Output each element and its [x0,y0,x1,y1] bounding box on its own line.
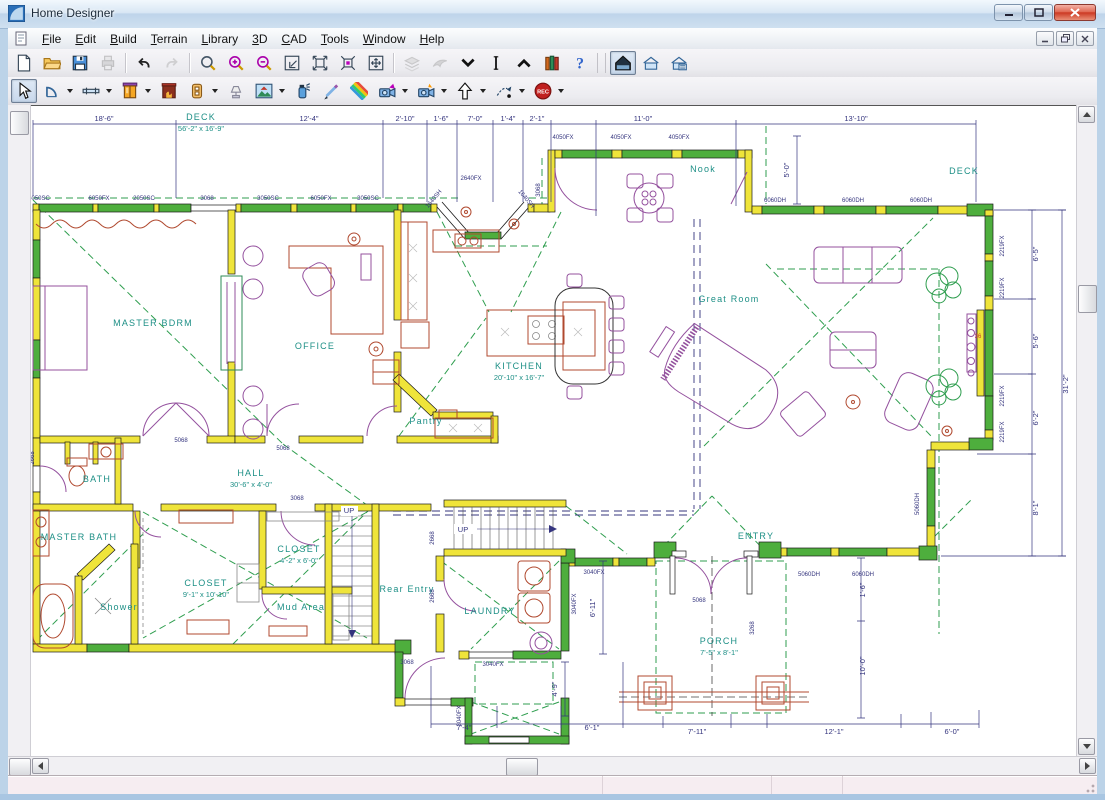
window-code-label: 2219FX [1000,277,1006,298]
help-icon [571,54,589,72]
dimension-label: 31'-2" [1061,374,1070,393]
floor-plan[interactable]: DECK56'-2" x 16'-9"NookDECKGreat RoomMAS… [31,106,1077,756]
window-code-label: 2219FX [1000,421,1006,442]
dimension-label: 7'-11" [688,727,707,736]
redo-icon [163,54,181,72]
layers-icon [403,54,421,72]
window-code-label: 2219FX [1000,385,1006,406]
scroll-left-button[interactable] [32,758,49,774]
room-label: BATH [83,474,111,484]
horizontal-scrollbar[interactable] [8,756,1097,776]
mdi-restore-button[interactable] [1056,31,1074,46]
tool-expand-region[interactable] [335,51,361,75]
scroll-down-button[interactable] [1078,738,1095,755]
dimension-label: UP [344,506,354,515]
menu-edit[interactable]: Edit [68,30,103,48]
tool-window-tool[interactable] [78,79,104,103]
cabinet-icon [121,82,139,100]
right-arrow-icon [1085,762,1090,770]
undo-icon [135,54,153,72]
menu-3d[interactable]: 3D [245,30,274,48]
dimension-label: 6'-1" [585,723,600,732]
camera-flash-icon [417,82,435,100]
walkthrough-icon [495,82,513,100]
window-code-label: 5068 [692,598,706,604]
room-label: Pantry [409,416,442,426]
room-label: MASTER BATH [41,532,118,542]
window-code-label: 36 [975,334,982,340]
maximize-button[interactable] [1024,4,1053,21]
menu-build[interactable]: Build [103,30,144,48]
left-scrollbar-thumb[interactable] [10,111,29,135]
room-label: Mud Area [277,602,325,612]
window-code-label: 3068 [200,196,214,202]
left-arrow-icon [38,762,43,770]
window-code-label: 3040FX [583,570,604,576]
menu-tools[interactable]: Tools [314,30,356,48]
tool-camera[interactable] [374,79,400,103]
room-size-label: 9'-1" x 10'-10" [183,590,229,599]
status-section [772,776,843,795]
window-code-label: 3068 [290,496,304,502]
tool-print [95,51,121,75]
window-code-label: 2668 [430,531,436,545]
tool-zoom-in[interactable] [223,51,249,75]
tool-fill-window[interactable] [279,51,305,75]
dimension-label: 7'-0" [468,114,483,123]
expand-region-icon [339,54,357,72]
exterior-walls [33,150,993,744]
menu-bar: FileEditBuildTerrainLibrary3DCADToolsWin… [8,28,1097,50]
resize-grip[interactable] [1083,781,1095,793]
room-size-label: 4'-2" x 6'-0" [280,556,318,565]
house-plan-icon [642,54,660,72]
dimension-label: 6'-5" [1031,246,1040,261]
zoom-out-icon [255,54,273,72]
menu-help[interactable]: Help [413,30,452,48]
window-code-label: 3068 [536,183,542,197]
window-bottom-border [0,794,1105,800]
expand-all-icon [311,54,329,72]
north-arrow-icon [456,82,474,100]
room-label: DECK [949,166,979,176]
outlet-icon [188,82,206,100]
spray-icon [294,82,312,100]
new-file-icon [15,54,33,72]
dropdown-arrow-icon[interactable] [519,89,525,93]
dropdown-arrow-icon[interactable] [67,89,73,93]
tool-undo[interactable] [131,51,157,75]
tool-walkthrough[interactable] [491,79,517,103]
status-bar [8,775,1097,795]
menu-window[interactable]: Window [356,30,413,48]
tool-fireplace[interactable] [156,79,182,103]
house-detail-icon [670,54,688,72]
tool-open-folder[interactable] [39,51,65,75]
stairs [332,506,557,638]
tool-feather [427,51,453,75]
status-section [8,776,603,795]
print-icon [99,54,117,72]
tool-expand-all[interactable] [307,51,333,75]
zoom-icon [199,54,217,72]
dimension-label: 13'-10" [844,114,868,123]
window-code-label: 6060DH [842,198,864,204]
app-logo-icon [8,5,25,22]
minimize-icon [1004,8,1014,17]
window-code-label: 2668 [31,451,36,465]
room-size-label: 7'-5" x 8'-1" [700,648,738,657]
status-section [603,776,772,795]
tool-door-arch[interactable] [39,79,65,103]
scroll-right-button[interactable] [1079,758,1096,774]
tool-materials[interactable] [346,79,372,103]
light-fixture-icon [227,82,245,100]
tool-outlet[interactable] [184,79,210,103]
room-label: ENTRY [738,531,774,541]
maximize-icon [1034,8,1044,17]
up-arrow-icon [1083,112,1091,117]
left-scrollbar[interactable] [8,105,31,756]
arrow-up-icon [515,54,533,72]
window-code-label: 6060DH [910,198,932,204]
vertical-scrollbar-thumb[interactable] [1078,285,1097,313]
tool-zoom[interactable] [195,51,221,75]
tool-camera-flash[interactable] [413,79,439,103]
tool-image-tool[interactable] [251,79,277,103]
mdi-controls [1036,31,1094,46]
menu-file[interactable]: File [35,30,68,48]
room-label: HALL [237,468,264,478]
pencil-icon [322,82,340,100]
materials-icon [350,82,368,100]
dropdown-arrow-icon[interactable] [145,89,151,93]
tool-spray[interactable] [290,79,316,103]
tool-arrow-down[interactable] [455,51,481,75]
dimension-label: 6'-2" [1031,410,1040,425]
camera-icon [378,82,396,100]
toolbar-grip [597,53,606,73]
window-code-label: 2219FX [1000,235,1006,256]
room-label: Great Room [698,294,759,304]
mdi-close-button[interactable] [1076,31,1094,46]
dropdown-arrow-icon[interactable] [441,89,447,93]
room-label: LAUNDRY [464,606,515,616]
window-code-label: 1640SH [516,189,535,209]
window-code-label: 4050FX [668,135,689,141]
minimize-button[interactable] [994,4,1023,21]
feather-icon [431,54,449,72]
fireplace-icon [160,82,178,100]
dimension-label: 4'-9" [550,681,559,696]
window-code-label: 3040FX [572,593,578,614]
window-code-label: 3050SC [357,196,379,202]
tool-record[interactable] [530,79,556,103]
dropdown-arrow-icon[interactable] [212,89,218,93]
work-area: DECK56'-2" x 16'-9"NookDECKGreat RoomMAS… [8,105,1097,756]
dimension-label: 1'-6" [434,114,449,123]
toolbar-separator [125,53,127,73]
grand-piano [640,311,789,440]
dropdown-arrow-icon[interactable] [558,89,564,93]
title-bar[interactable]: Home Designer [0,0,1105,29]
room-label: CLOSET [184,578,227,588]
dimension-label: 6'-11" [588,598,597,617]
dimension-label: 1'-6" [858,582,867,597]
menu-items: FileEditBuildTerrainLibrary3DCADToolsWin… [35,30,451,48]
dimension-label: 10'-0" [858,656,867,675]
tool-cabinet[interactable] [117,79,143,103]
house-overview-icon [614,54,632,72]
mdi-close-icon [1081,35,1089,43]
toolbar-build [8,77,1097,106]
tool-pencil[interactable] [318,79,344,103]
room-label: Nook [690,164,716,174]
window-code-label: 5050SC [31,196,51,202]
dimension-label: 5'-6" [1031,333,1040,348]
dropdown-arrow-icon[interactable] [106,89,112,93]
window-code-label: 2640FX [460,176,481,182]
horizontal-scrollbar-thumb[interactable] [506,758,538,776]
tool-north-arrow[interactable] [452,79,478,103]
app-window: Home Designer FileEditBuildTerrainLibrar… [0,0,1105,800]
menu-terrain[interactable]: Terrain [144,30,195,48]
marker-icon [487,54,505,72]
tool-help[interactable] [567,51,593,75]
arrow-down-icon [459,54,477,72]
mdi-minimize-button[interactable] [1036,31,1054,46]
room-label: Rear Entry [379,584,434,594]
tool-select[interactable] [11,79,37,103]
toolbar-main [8,49,1097,78]
room-label: MASTER BDRM [113,318,193,328]
room-label: Shower [100,602,138,612]
close-button[interactable] [1054,4,1096,21]
toolbar-separator [189,53,191,73]
status-section [843,776,1097,795]
door-arch-icon [43,82,61,100]
window-code-label: 3040FX [457,705,463,726]
library-icon [543,54,561,72]
window-code-label: 4050FX [552,135,573,141]
window-tool-icon [82,82,100,100]
dropdown-arrow-icon[interactable] [402,89,408,93]
dimension-label: 6'-0" [945,727,960,736]
dimension-label: UP [458,525,468,534]
interior-walls [33,210,566,652]
window-code-label: 3050SC [257,196,279,202]
tool-house-plan[interactable] [638,51,664,75]
dropdown-arrow-icon[interactable] [480,89,486,93]
fill-window-icon [283,54,301,72]
tool-arrow-up[interactable] [511,51,537,75]
tool-save[interactable] [67,51,93,75]
tool-redo [159,51,185,75]
scrollbar-corner [9,758,31,776]
window-code-label: 2668 [430,589,436,603]
dimension-label: 8'-1" [1031,500,1040,515]
tool-house-overview[interactable] [610,51,636,75]
mdi-restore-icon [1061,34,1070,43]
tool-light-fixture[interactable] [223,79,249,103]
zoom-in-icon [227,54,245,72]
window-code-label: 5068 [276,446,290,452]
dimension-label: 18'-6" [94,114,113,123]
window-code-label: 3268 [750,621,756,635]
roof-overhang-lines [33,126,971,734]
window-code-label: 2050SC [133,196,155,202]
drawing-canvas[interactable]: DECK56'-2" x 16'-9"NookDECKGreat RoomMAS… [31,105,1077,756]
room-label: KITCHEN [495,361,543,371]
dimension-label: 5'-0" [782,162,791,177]
mdi-minimize-icon [1041,35,1049,43]
window-code-label: 5060DH [915,493,921,515]
window-title: Home Designer [31,6,114,20]
record-icon [534,82,552,100]
doors [40,168,747,698]
room-size-label: 20'-10" x 16'-7" [494,373,545,382]
save-icon [71,54,89,72]
tool-house-detail[interactable] [666,51,692,75]
room-label: OFFICE [295,341,335,351]
window-code-label: 3068 [400,660,414,666]
tool-zoom-out[interactable] [251,51,277,75]
menu-library[interactable]: Library [194,30,245,48]
room-label: DECK [186,112,216,122]
window-code-label: 6050FX [88,196,109,202]
room-size-label: 30'-6" x 4'-0" [230,480,272,489]
dimension-label: 12'-4" [299,114,318,123]
vertical-scrollbar[interactable] [1076,105,1097,756]
dimension-label: 1'-4" [501,114,516,123]
tool-new-file[interactable] [11,51,37,75]
window-code-label: 6050FX [310,196,331,202]
toolbar-separator [393,53,395,73]
room-label: PORCH [700,636,739,646]
down-arrow-icon [1083,744,1091,749]
room-label: CLOSET [277,544,320,554]
window-code-label: 4050FX [610,135,631,141]
window-code-label: 5068 [174,438,188,444]
dimension-label: 2'-10" [395,114,414,123]
scroll-up-button[interactable] [1078,106,1095,123]
select-icon [15,82,33,100]
dimension-label: 11'-0" [634,114,653,123]
dimension-label: 12'-1" [824,727,843,736]
pan-icon [367,54,385,72]
window-code-label: 6060DH [852,572,874,578]
room-size-label: 56'-2" x 16'-9" [178,124,224,133]
dimension-label: 2'-1" [530,114,545,123]
image-tool-icon [255,82,273,100]
close-icon [1070,8,1080,17]
tool-library[interactable] [539,51,565,75]
window-code-label: 6060DH [764,198,786,204]
document-icon[interactable] [12,31,32,47]
tool-layers [399,51,425,75]
open-folder-icon [43,54,61,72]
menu-cad[interactable]: CAD [275,30,314,48]
window-code-label: 3040FX [482,662,503,668]
window-code-label: 5060DH [798,572,820,578]
tool-pan[interactable] [363,51,389,75]
dropdown-arrow-icon[interactable] [279,89,285,93]
tool-marker[interactable] [483,51,509,75]
